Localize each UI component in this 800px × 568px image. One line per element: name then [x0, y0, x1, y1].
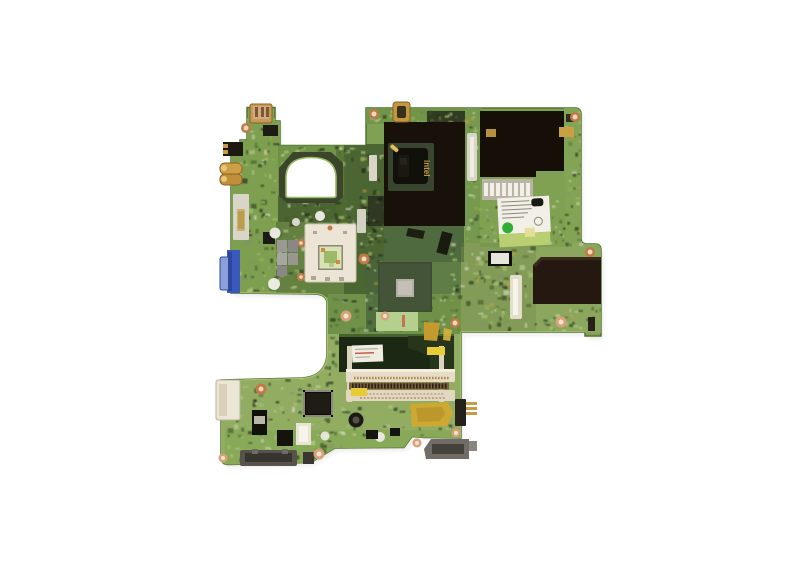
svg-text:intel: intel	[422, 160, 431, 176]
